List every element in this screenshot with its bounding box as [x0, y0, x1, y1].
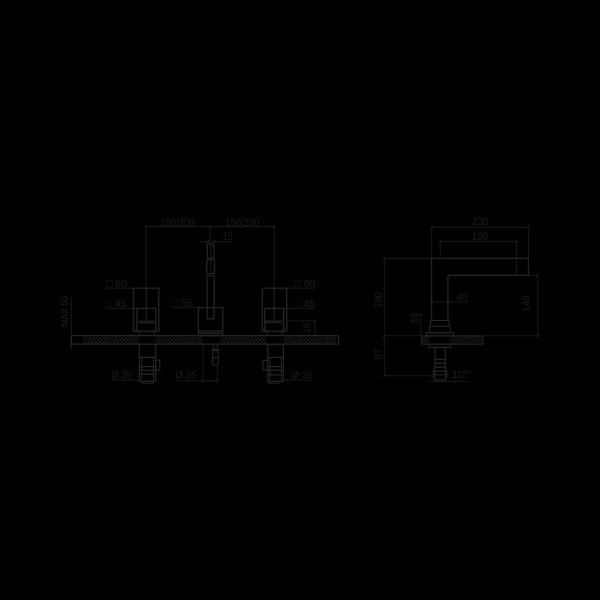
svg-text:40: 40	[457, 292, 468, 304]
svg-text:10: 10	[411, 313, 422, 322]
svg-text:MAX 50: MAX 50	[60, 296, 71, 327]
svg-text:□ 55: □ 55	[172, 298, 193, 310]
svg-text:150/200: 150/200	[225, 217, 259, 229]
svg-text:15: 15	[223, 231, 233, 243]
svg-text:1/2": 1/2"	[452, 369, 470, 381]
svg-text:140: 140	[521, 295, 533, 311]
svg-text:150/200: 150/200	[161, 217, 195, 229]
svg-text:230: 230	[473, 216, 489, 228]
svg-text:180: 180	[472, 231, 488, 243]
svg-text:□ 45: □ 45	[106, 298, 127, 310]
svg-text:□ 60: □ 60	[295, 278, 316, 290]
svg-text:18: 18	[301, 323, 313, 333]
svg-text:□ 45: □ 45	[294, 298, 315, 310]
svg-text:Ø 35: Ø 35	[176, 370, 197, 382]
svg-text:180: 180	[373, 292, 385, 308]
svg-text:97: 97	[373, 349, 385, 360]
svg-text:□ 60: □ 60	[106, 278, 127, 290]
